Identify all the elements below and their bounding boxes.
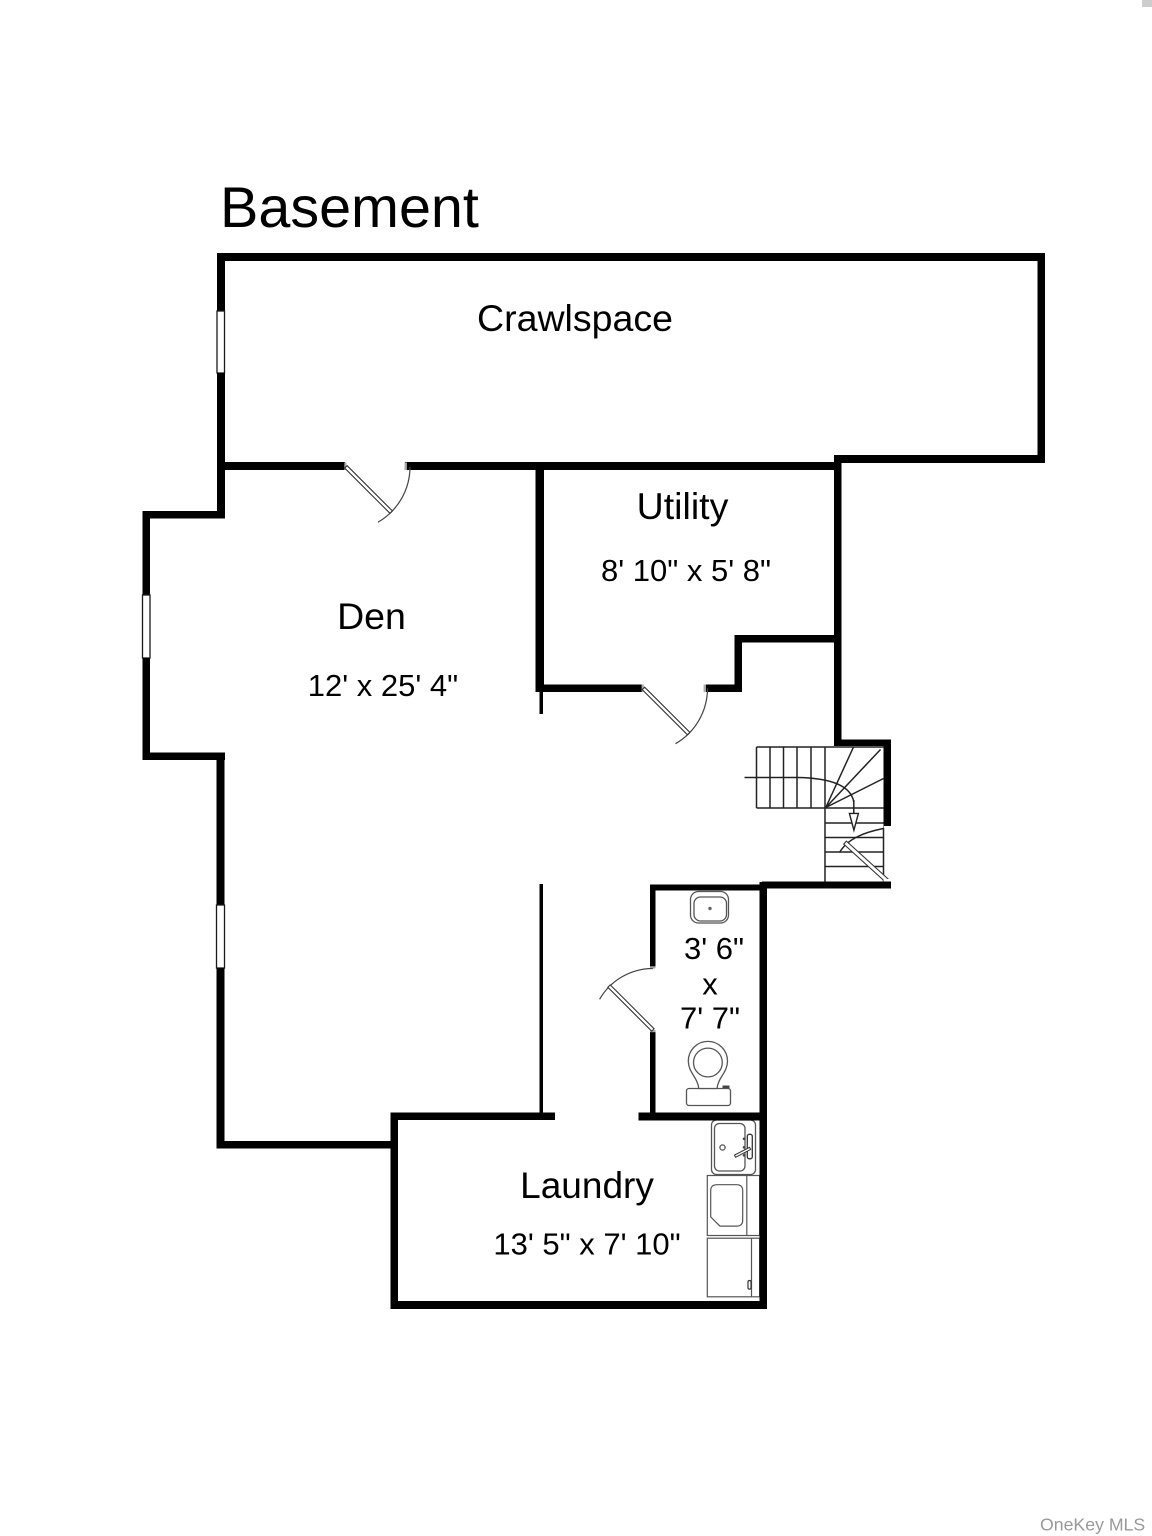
svg-text:x: x [702, 967, 718, 1002]
svg-text:Crawlspace: Crawlspace [477, 297, 673, 339]
svg-text:7' 7": 7' 7" [680, 1001, 740, 1036]
svg-text:Basement: Basement [220, 176, 479, 240]
svg-text:13' 5" x 7' 10": 13' 5" x 7' 10" [493, 1227, 680, 1262]
svg-text:Utility: Utility [637, 485, 729, 527]
svg-text:3' 6": 3' 6" [684, 931, 744, 966]
svg-text:12' x 25' 4": 12' x 25' 4" [308, 668, 458, 703]
svg-text:Den: Den [337, 595, 406, 637]
svg-text:Laundry: Laundry [520, 1165, 654, 1206]
svg-text:8' 10" x 5' 8": 8' 10" x 5' 8" [601, 553, 771, 588]
svg-text:OneKey MLS: OneKey MLS [1040, 1515, 1145, 1535]
